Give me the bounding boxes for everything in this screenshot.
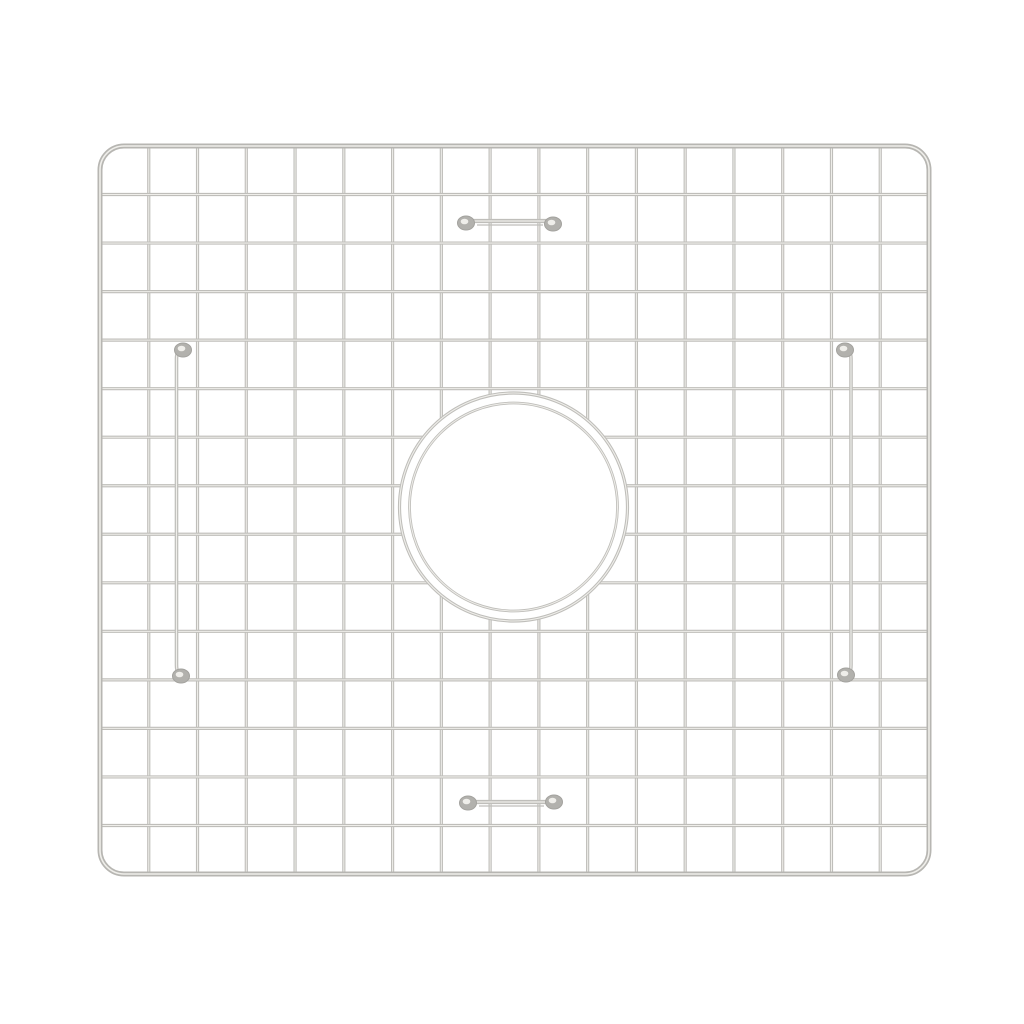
foot-bar-bottom: [460, 795, 563, 810]
drain-opening: [400, 393, 628, 621]
sink-grid-illustration: [0, 0, 1024, 1024]
product-photo: [0, 0, 1024, 1024]
foot-bar-top: [458, 216, 562, 231]
